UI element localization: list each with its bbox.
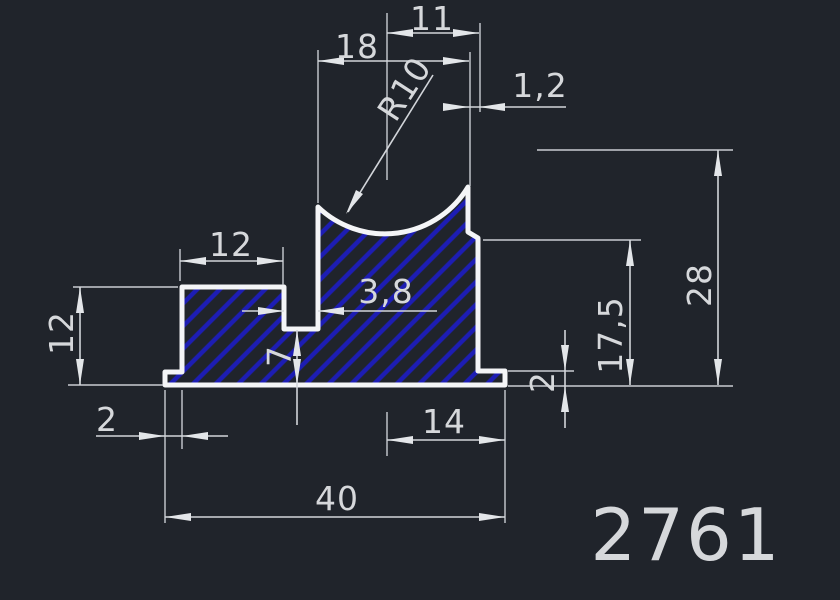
arrowhead (257, 257, 283, 265)
arrowhead (443, 103, 469, 111)
arrowhead (479, 513, 505, 521)
dim-right-foot-height: 2 (523, 371, 562, 393)
arrowhead (76, 359, 84, 385)
dim-left-foot-offset: 2 (96, 400, 118, 439)
arrowhead (714, 150, 722, 176)
arrowhead (453, 29, 479, 37)
arrowhead (76, 287, 84, 313)
part-number: 2761 (590, 493, 781, 577)
cad-drawing-canvas: 11 18 1,2 R10 12 3,8 12 7 2 14 40 2 17,5… (0, 0, 840, 600)
arrowhead (165, 513, 191, 521)
arrowhead (387, 436, 413, 444)
dim-right-step-width: 1,2 (512, 66, 567, 105)
dim-left-block-top-width: 12 (209, 225, 253, 264)
dim-top-opening-width: 18 (335, 27, 379, 66)
arrowhead (443, 57, 469, 65)
dim-slot-floor-thickness: 7 (260, 345, 299, 367)
radius-leader-arrowhead (346, 190, 363, 214)
dim-top-notch-width: 11 (410, 0, 454, 38)
arrowhead (139, 432, 165, 440)
arrowhead (479, 103, 505, 111)
arrowhead (180, 257, 206, 265)
dim-bottom-right-width: 14 (422, 402, 466, 441)
arrowhead (561, 386, 569, 412)
arrowhead (714, 359, 722, 385)
dim-total-width: 40 (315, 479, 359, 518)
arrowhead (626, 240, 634, 266)
dim-total-height: 28 (680, 263, 719, 307)
arrowhead (182, 432, 208, 440)
profile-outline (165, 187, 505, 385)
dim-slot-width: 3,8 (358, 272, 413, 311)
arrowhead (561, 345, 569, 371)
arrowhead (479, 436, 505, 444)
dim-left-block-height: 12 (42, 311, 81, 355)
dim-right-step-height: 17,5 (591, 296, 630, 373)
cad-drawing-viewport: 11 18 1,2 R10 12 3,8 12 7 2 14 40 2 17,5… (0, 0, 840, 600)
